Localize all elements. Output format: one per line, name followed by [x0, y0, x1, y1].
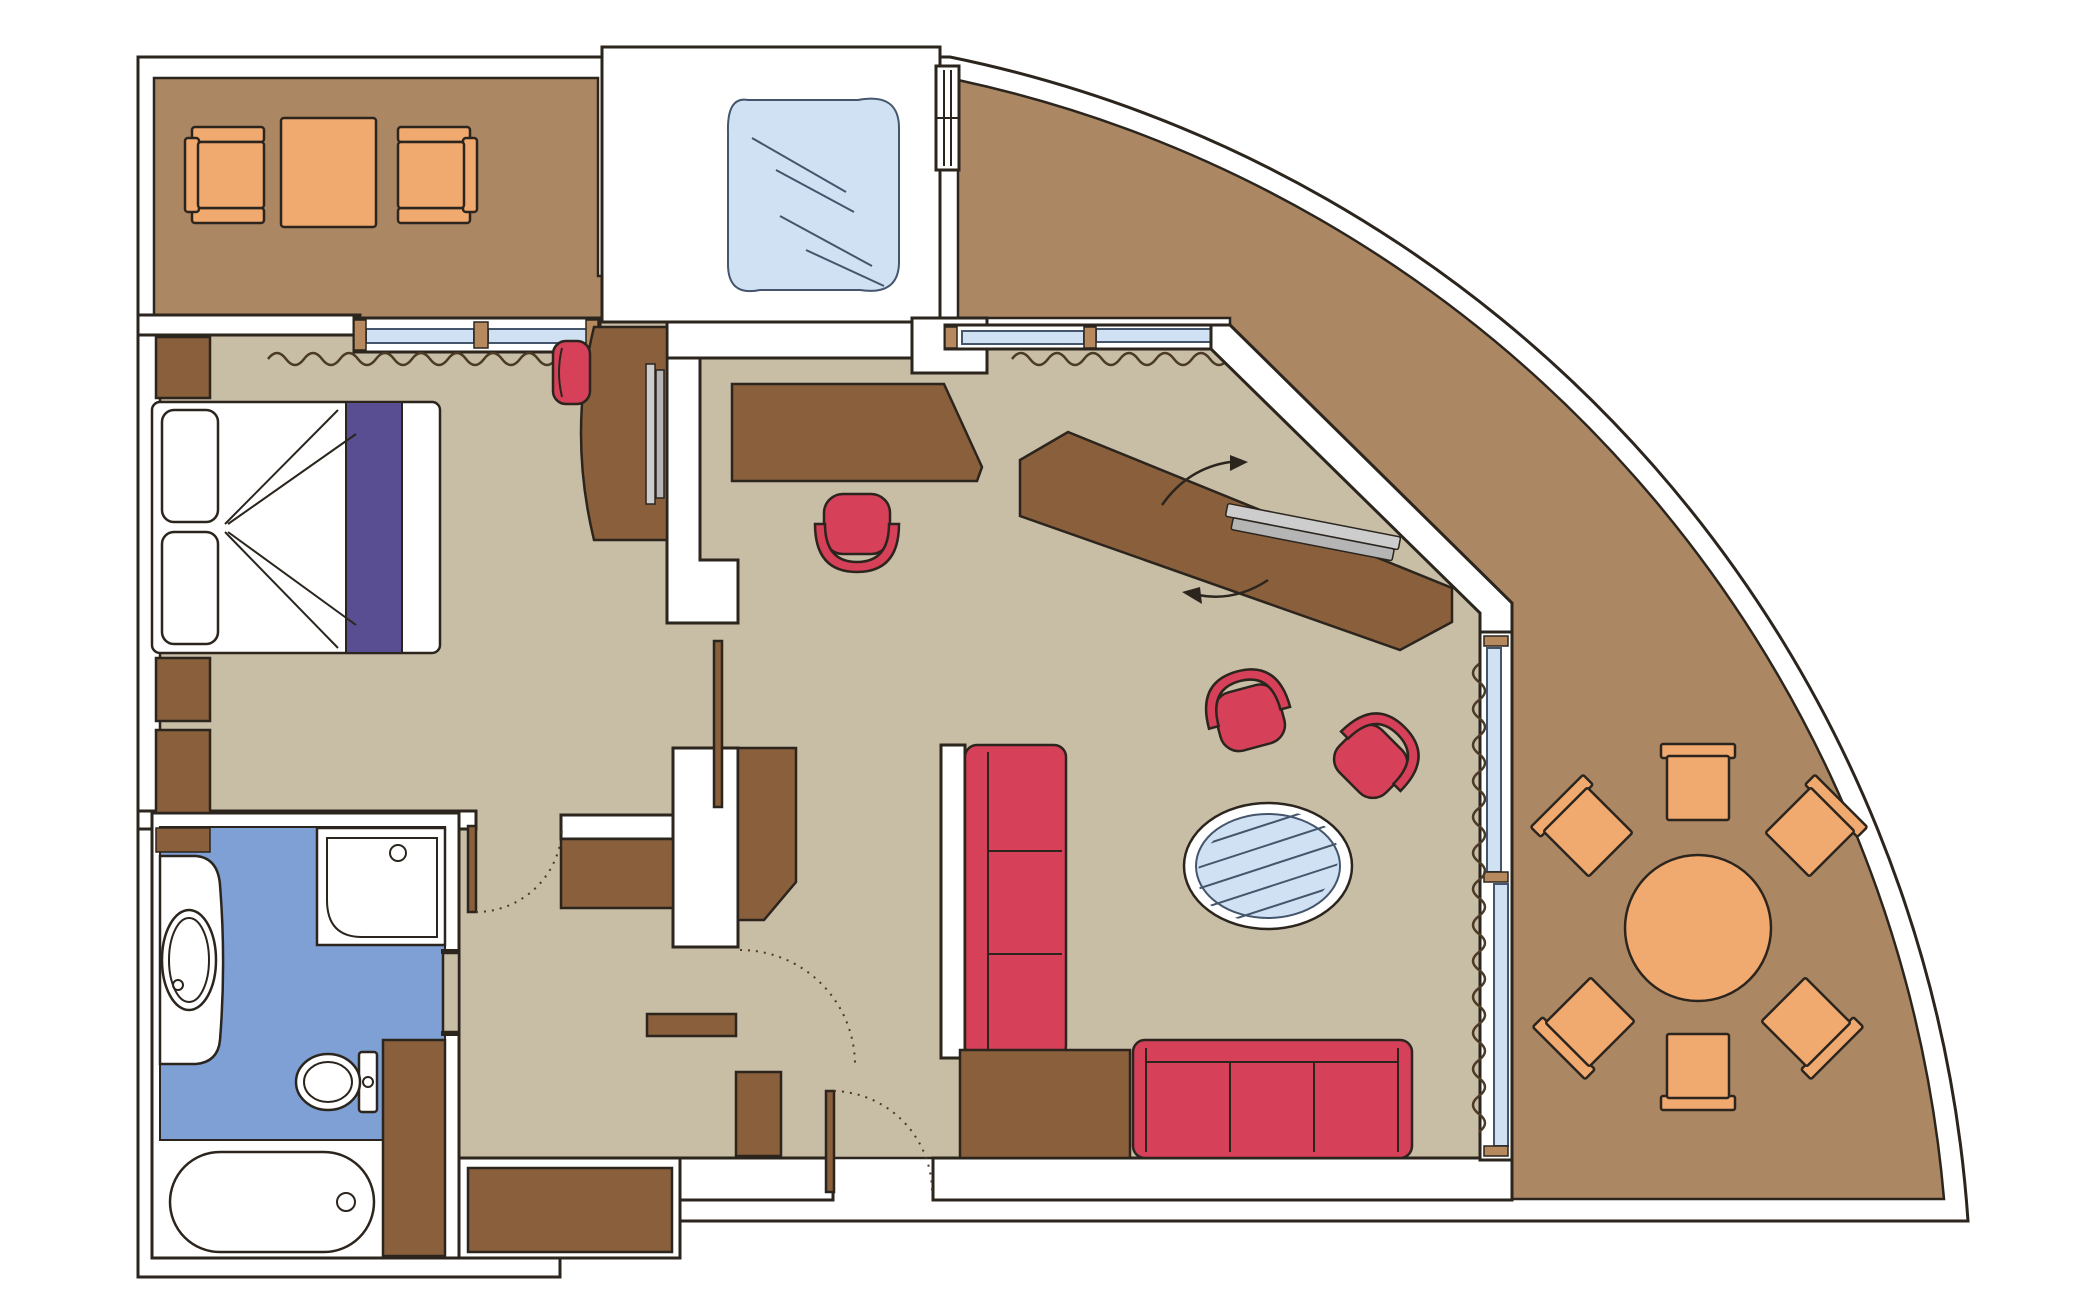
- floor-plan-canvas: [0, 0, 2099, 1299]
- wall-dressing-vertical: [673, 748, 738, 947]
- balcony-coffee-table: [281, 118, 376, 227]
- nightstand-low: [156, 730, 210, 813]
- interior-door-leaf: [714, 641, 722, 807]
- bathroom-storage-column: [383, 1040, 445, 1256]
- dining-chair: [1661, 1034, 1735, 1110]
- bed-runner: [346, 402, 402, 653]
- round-dining-table: [1625, 855, 1771, 1001]
- wall-shelf: [647, 1014, 736, 1036]
- shower-stall: [317, 828, 445, 945]
- bathroom-corner-shelf: [156, 828, 210, 852]
- corner-cabinet: [960, 1050, 1130, 1158]
- vanity-sink: [160, 856, 223, 1064]
- shower-room-window: [936, 66, 959, 170]
- dining-chair: [1661, 744, 1735, 820]
- wall-bottom-entry-left: [680, 1158, 833, 1200]
- sofa-horizontal: [1133, 1040, 1412, 1158]
- wardrobe-main: [468, 1168, 672, 1252]
- balcony-armchair: [185, 127, 264, 223]
- writing-desk: [732, 384, 982, 481]
- pillow: [162, 410, 218, 522]
- bathroom-door-leaf: [468, 826, 476, 912]
- walk-in-shower-glass: [728, 99, 899, 292]
- living-room-window: [945, 325, 1230, 349]
- balcony-armchair: [398, 127, 477, 223]
- sliding-balcony-door: [1480, 632, 1512, 1160]
- floor-plan-svg: [0, 0, 2099, 1299]
- nightstand-top: [156, 337, 210, 398]
- private-balcony-top: [185, 118, 477, 227]
- wall-bottom-living: [933, 1158, 1512, 1200]
- wall-balcony-bedroom: [138, 315, 360, 335]
- closet-left: [561, 839, 673, 908]
- closet-right: [738, 748, 796, 920]
- bedroom-tv-panel: [646, 364, 655, 504]
- oval-glass-table: [1184, 803, 1352, 929]
- vanity-stool: [553, 341, 590, 404]
- toilet: [296, 1052, 377, 1112]
- wardrobe-low: [736, 1072, 781, 1156]
- console-panel: [941, 745, 965, 1058]
- pillow: [162, 532, 218, 644]
- entry-door-leaf: [826, 1091, 834, 1192]
- nightstand-mid: [156, 658, 210, 721]
- double-bed: [152, 402, 440, 653]
- bathtub: [170, 1152, 374, 1252]
- shower-room: [602, 47, 959, 358]
- bathroom-doorway: [443, 953, 459, 1032]
- sofa-vertical: [965, 745, 1066, 1058]
